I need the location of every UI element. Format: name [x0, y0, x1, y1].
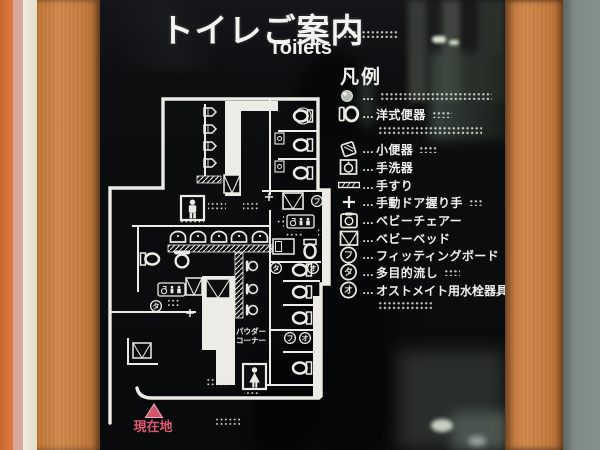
wood-frame-left — [37, 0, 100, 450]
legend-row-dot: … — [338, 87, 492, 105]
legend-label: 手すり — [376, 177, 413, 194]
legend-row-hand-basin: … 手洗器 — [338, 158, 413, 176]
toilet — [293, 362, 312, 374]
legend-ellipsis: … — [362, 265, 373, 279]
toilet — [294, 167, 313, 179]
mens-room-symbol — [181, 196, 204, 220]
doorframe-strip-orange — [0, 0, 13, 450]
badge-o: オ — [300, 333, 311, 344]
wash-basin — [171, 232, 186, 243]
baby-bed-marker — [133, 343, 151, 358]
womens-room-symbol — [243, 364, 266, 389]
badge-fu: フ — [312, 196, 323, 207]
legend-ellipsis: … — [362, 283, 373, 297]
legend-ellipsis: … — [362, 231, 373, 245]
manual-door-handle-icon — [338, 193, 360, 211]
accessible-sign — [158, 283, 185, 296]
braille-line — [378, 301, 432, 310]
wash-basin — [212, 232, 227, 243]
legend-heading: 凡例 — [340, 62, 382, 89]
svg-text:パウダー: パウダー — [236, 326, 266, 336]
legend-ellipsis: … — [362, 248, 373, 262]
handrail-icon — [338, 176, 360, 194]
accessible-sign — [287, 215, 314, 228]
reflection-floor — [398, 350, 505, 450]
toilet — [294, 139, 313, 151]
legend-row-handrail: … 手すり — [338, 176, 413, 194]
braille-title — [343, 30, 399, 38]
hand-basin-icon — [338, 158, 360, 176]
reflection-shoe — [431, 419, 453, 432]
toilet — [293, 286, 312, 298]
braille-dots — [380, 92, 492, 100]
svg-text:タ: タ — [153, 302, 160, 311]
door-swing-square — [224, 175, 240, 193]
doorframe-strip-cream — [23, 0, 37, 450]
legend-ellipsis: … — [362, 178, 373, 192]
legend-label: オストメイト用水栓器具 — [376, 282, 505, 299]
bidet-chair — [174, 251, 190, 268]
powder-chair — [246, 261, 258, 272]
legend-label: ベビーベッド — [376, 230, 450, 247]
door-handle-mark — [265, 193, 273, 201]
dot-icon — [338, 87, 360, 105]
baby-bed-marker — [283, 193, 303, 209]
legend-row-multi-purpose-sink: タ … 多目的流し — [338, 263, 460, 281]
badge-fu: フ — [285, 333, 296, 344]
legend-label: 手洗器 — [376, 159, 413, 176]
legend-label: 小便器 — [376, 141, 413, 158]
urinal-icon — [338, 140, 360, 158]
reflection-floor-bright — [452, 412, 505, 450]
legend-row-fitting-board: フ … フィッティングボード — [338, 246, 499, 264]
legend-row-ostomate: オ … オストメイト用水栓器具 — [338, 281, 505, 299]
circle-o-icon: オ — [338, 281, 360, 299]
legend-label: 多目的流し — [376, 264, 438, 281]
legend-row-western-toilet: … 洋式便器 — [338, 105, 452, 123]
toilet — [304, 240, 316, 259]
current-location-marker: 現在地 — [133, 404, 172, 434]
reflection-light-spot — [449, 40, 459, 45]
toilet-guide-signboard: トイレご案内 Toilets 凡例 … … 洋式便器 — [100, 0, 505, 450]
baby-bed-icon — [338, 229, 360, 247]
sign-title-english: Toilets — [258, 37, 343, 60]
svg-text:フ: フ — [344, 250, 353, 260]
wash-basin — [253, 232, 268, 243]
legend-row-baby-chair: … ベビーチェアー — [338, 211, 462, 229]
doorframe-strip-pink — [13, 0, 23, 450]
stall-basin — [275, 133, 284, 172]
braille-dots — [444, 269, 460, 276]
reflection-light-spot — [432, 36, 446, 43]
svg-text:フ: フ — [314, 198, 321, 206]
legend-row-door-handle: … 手動ドア握り手 — [338, 193, 483, 211]
baby-chair-icon — [338, 211, 360, 229]
svg-text:オ: オ — [310, 265, 317, 273]
door-swing-square — [206, 279, 230, 298]
powder-chair — [246, 305, 258, 316]
badge-ta: タ — [271, 263, 282, 274]
baby-bed-marker — [186, 278, 202, 295]
legend-ellipsis: … — [362, 213, 373, 227]
changing-bed — [273, 239, 294, 254]
wash-basin — [191, 232, 206, 243]
legend-ellipsis: … — [362, 160, 373, 174]
wood-frame-right — [505, 0, 563, 450]
floor-plan-map: フ タ オ フ — [100, 88, 336, 440]
braille-dots — [432, 111, 452, 118]
western-toilet-icon — [338, 105, 360, 123]
svg-text:フ: フ — [287, 335, 294, 343]
legend-ellipsis: … — [362, 195, 373, 209]
braille-dots — [469, 199, 483, 206]
legend-label: ベビーチェアー — [376, 212, 462, 229]
svg-text:オ: オ — [302, 335, 309, 343]
powder-corner-label: パウダー コーナー — [236, 326, 266, 345]
toilet — [293, 312, 312, 324]
legend-label: 洋式便器 — [376, 106, 426, 123]
legend-ellipsis: … — [362, 89, 373, 103]
toilet — [141, 253, 160, 265]
photo-of-toilet-guide-sign: トイレご案内 Toilets 凡例 … … 洋式便器 — [0, 0, 600, 450]
svg-text:オ: オ — [344, 285, 353, 295]
braille-dots — [419, 146, 437, 153]
svg-text:コーナー: コーナー — [236, 336, 266, 345]
legend-ellipsis: … — [362, 107, 373, 121]
wall-background — [563, 0, 600, 450]
badge-ta: タ — [151, 301, 162, 312]
powder-chair — [246, 284, 258, 295]
legend-ellipsis: … — [362, 142, 373, 156]
legend-row-urinal: … 小便器 — [338, 140, 437, 158]
legend-label: フィッティングボード — [376, 247, 499, 264]
legend-label: 手動ドア握り手 — [376, 194, 463, 211]
circle-fu-icon: フ — [338, 246, 360, 264]
svg-text:タ: タ — [273, 264, 280, 273]
circle-ta-icon: タ — [338, 263, 360, 281]
reflection-shoe — [468, 436, 486, 446]
door-handle-mark — [186, 309, 194, 317]
wash-basin — [232, 232, 247, 243]
svg-text:タ: タ — [344, 266, 353, 277]
current-location-label: 現在地 — [133, 419, 172, 434]
braille-line — [378, 126, 482, 135]
legend-row-baby-bed: … ベビーベッド — [338, 229, 450, 247]
current-location-triangle — [146, 404, 163, 418]
